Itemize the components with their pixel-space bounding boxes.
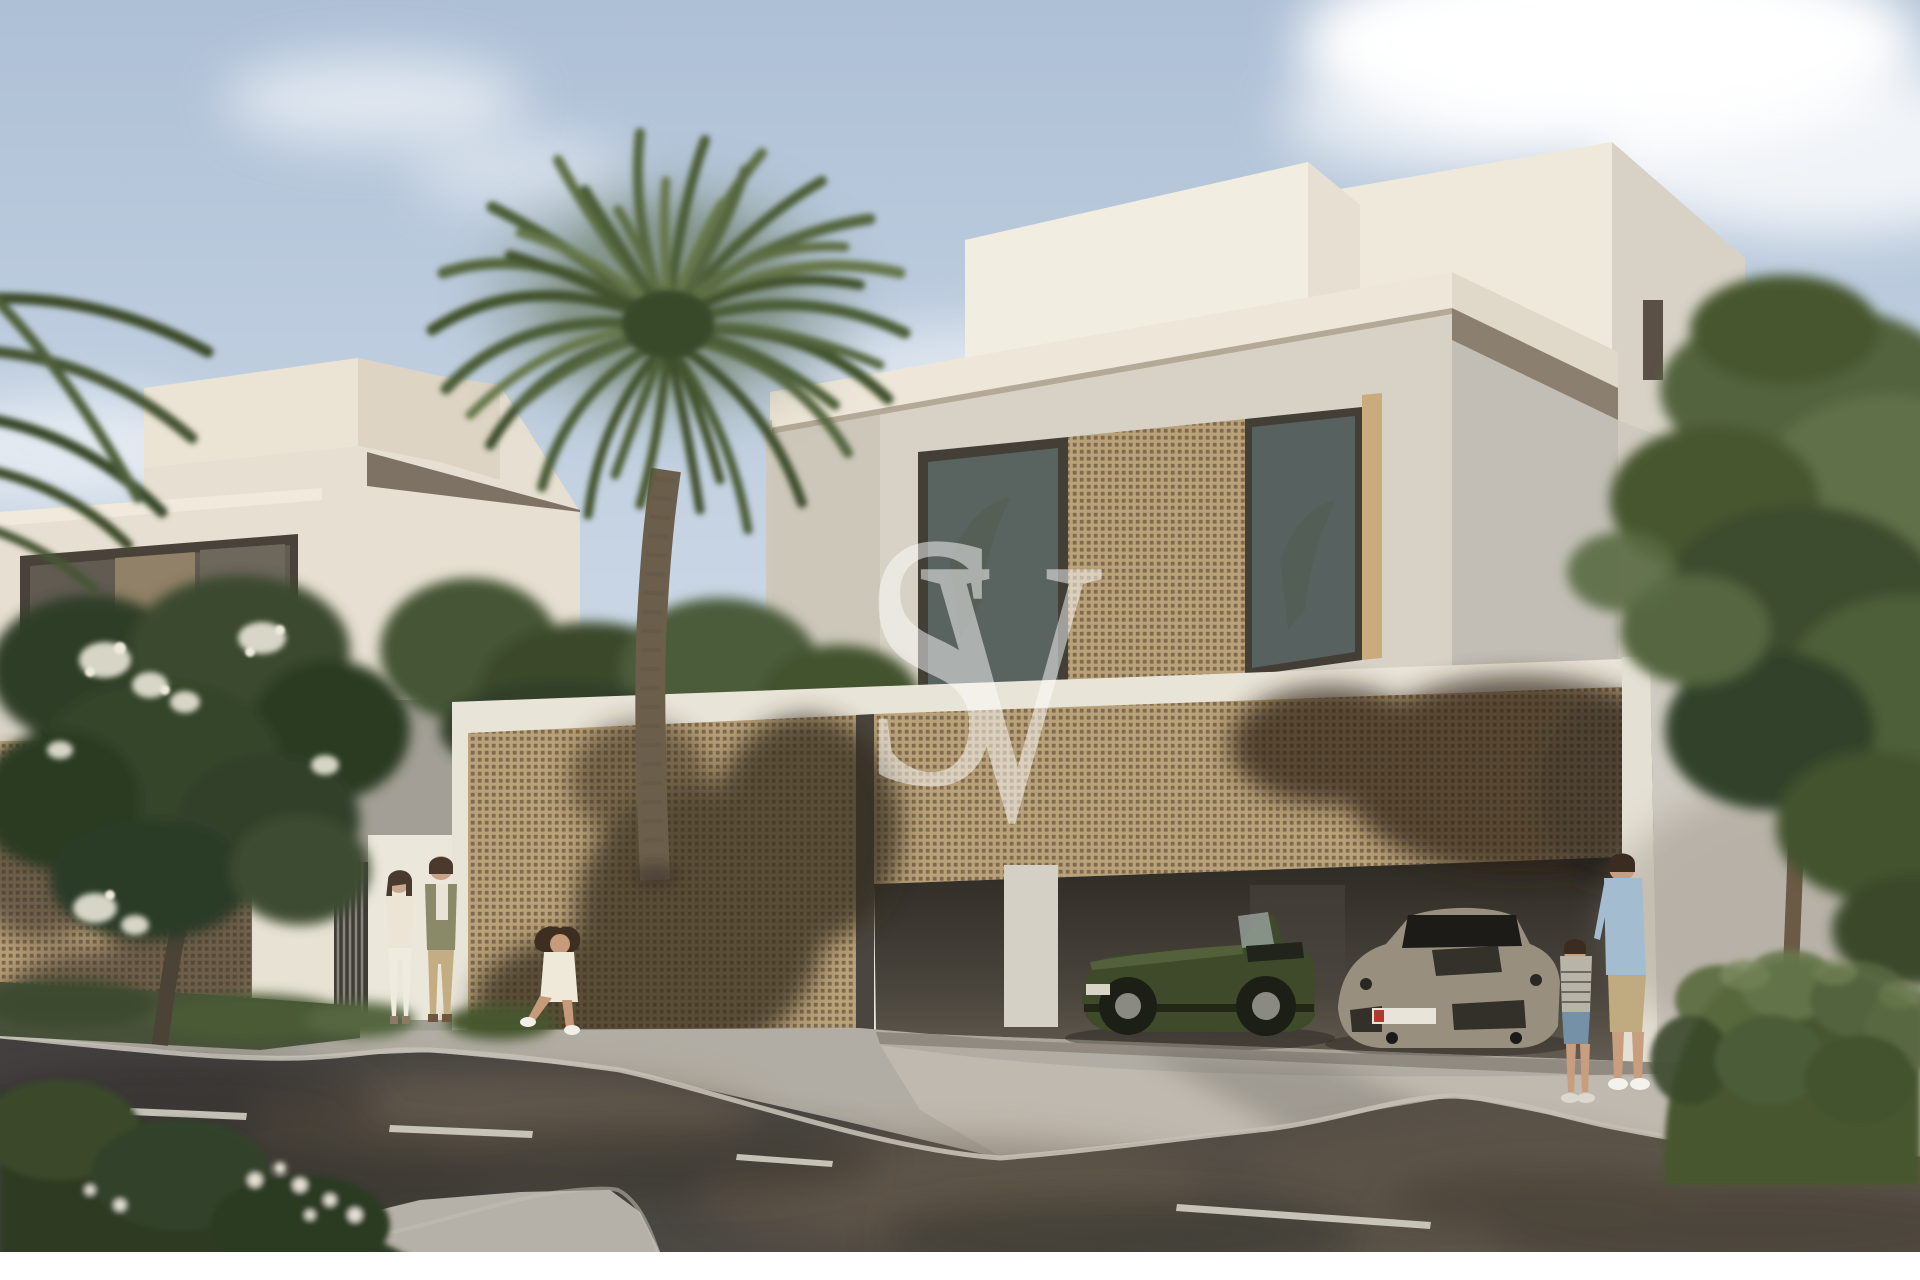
svg-text:V: V: [918, 480, 1105, 901]
